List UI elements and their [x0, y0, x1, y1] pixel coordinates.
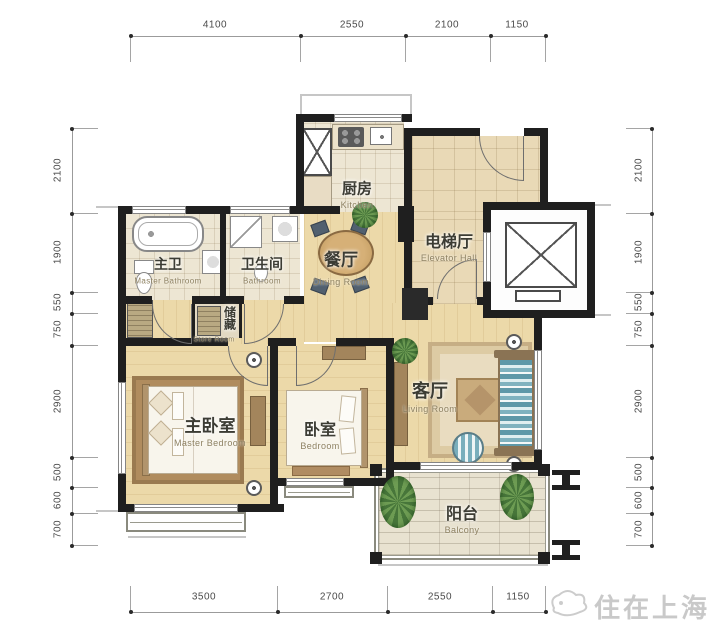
dimension-line-left	[72, 128, 73, 545]
neighbor-wall-stub	[96, 206, 118, 208]
label-balcony-en: Balcony	[445, 525, 480, 535]
pillar	[370, 552, 382, 564]
pillow	[172, 392, 184, 420]
dimension-tick	[492, 586, 493, 612]
label-dining-en: Dining Room	[313, 277, 369, 287]
wall	[268, 338, 296, 346]
door-leaf	[523, 136, 524, 181]
dimension-value: 3500	[192, 592, 216, 603]
label-living-room-zh: 客厅	[412, 377, 448, 403]
wall	[483, 202, 595, 210]
wall	[587, 202, 595, 318]
label-master-bathroom-en: Master Bathroom	[134, 277, 201, 286]
dimension-value: 2700	[320, 592, 344, 603]
wall	[192, 296, 244, 304]
dimension-tick	[626, 213, 652, 214]
wall	[284, 296, 304, 304]
dimension-value: 1150	[505, 20, 529, 31]
dimension-tick	[72, 128, 98, 129]
dimension-tick	[387, 586, 388, 612]
label-master-bathroom-zh: 主卫	[154, 254, 182, 274]
wall	[118, 296, 152, 304]
pillar	[538, 552, 550, 564]
sofa-armrest	[494, 350, 538, 358]
label-master-bedroom-zh: 主卧室	[185, 412, 236, 437]
neighbor-wall-stub	[595, 204, 611, 206]
window	[134, 504, 238, 512]
watermark-text: 住在上海	[594, 588, 710, 625]
dimension-tick	[626, 487, 652, 488]
wall	[540, 128, 548, 210]
label-bedroom-en: Bedroom	[300, 441, 339, 451]
label-store-room-en: Store Room	[193, 337, 234, 344]
dimension-value: 1900	[53, 240, 64, 264]
structural-column	[402, 288, 428, 320]
plant-icon	[380, 476, 416, 528]
kitchen-cabinet	[302, 176, 332, 210]
dimension-value: 500	[53, 463, 64, 481]
dimension-value: 4100	[203, 20, 227, 31]
dimension-tick	[130, 586, 131, 612]
sofa	[498, 358, 534, 448]
dimension-value: 2100	[53, 158, 64, 182]
i-beam-column	[552, 470, 580, 490]
elevator-icon	[505, 222, 577, 288]
wall	[398, 206, 414, 242]
dimension-value: 2550	[428, 592, 452, 603]
dimension-tick	[626, 457, 652, 458]
stove-icon	[338, 127, 364, 147]
kitchen-sink-icon	[370, 127, 392, 145]
wall	[483, 310, 595, 318]
label-bedroom-zh: 卧室	[304, 416, 336, 440]
dimension-tick	[72, 313, 98, 314]
dimension-line-bottom	[130, 612, 545, 613]
dimension-value: 600	[634, 491, 645, 509]
watermark-logo-icon	[546, 586, 590, 627]
door-leaf	[476, 259, 477, 299]
plant-icon	[500, 474, 534, 520]
window	[118, 382, 126, 474]
wall	[192, 304, 195, 338]
shower	[230, 216, 262, 248]
dimension-value: 700	[634, 520, 645, 538]
i-beam-column	[552, 540, 580, 560]
dimension-tick	[72, 513, 98, 514]
sill-line	[378, 564, 548, 566]
wall	[483, 282, 491, 318]
dimension-tick	[405, 36, 406, 62]
balcony-sliding-door	[420, 462, 512, 470]
label-bathroom-en: Bathroom	[243, 277, 281, 286]
dimension-line-top	[130, 36, 545, 37]
bathtub	[132, 216, 204, 252]
coffee-table	[452, 432, 484, 464]
bay-window	[284, 486, 354, 498]
nightstand-lamp	[246, 480, 262, 496]
window	[334, 114, 402, 122]
floor-plan-canvas: 厨房 Kitchen 电梯厅 Elevator Hall 餐厅 Dining R…	[0, 0, 720, 631]
window	[534, 350, 542, 450]
sofa-armrest	[494, 448, 538, 456]
neighbor-wall-stub	[595, 314, 611, 316]
hall-cabinet	[127, 300, 153, 338]
bay-window	[126, 512, 246, 532]
rug-medallion	[456, 378, 504, 422]
wall	[524, 128, 548, 136]
rug-medallion-inner	[464, 384, 495, 415]
bathtub-inner	[138, 222, 198, 246]
neighbor-wall-stub	[300, 94, 302, 114]
elevator-sill	[515, 290, 561, 302]
plant-icon	[392, 338, 418, 364]
dimension-tick	[626, 345, 652, 346]
label-store-room-zh: 储藏	[222, 306, 239, 330]
neighbor-wall-stub	[410, 94, 412, 114]
dimension-value: 2900	[634, 389, 645, 413]
dimension-tick	[130, 36, 131, 62]
dimension-value: 750	[634, 320, 645, 338]
dimension-tick	[72, 457, 98, 458]
pillow	[339, 395, 357, 422]
label-kitchen-zh: 厨房	[342, 178, 372, 199]
label-elevator-hall-zh: 电梯厅	[425, 228, 473, 252]
neighbor-wall-stub	[300, 94, 412, 96]
dimension-tick	[300, 36, 301, 62]
dimension-tick	[545, 36, 546, 62]
pillow	[339, 427, 356, 454]
window	[286, 478, 344, 486]
storage-shelves	[197, 306, 221, 336]
window	[132, 206, 186, 214]
wall	[296, 206, 340, 214]
wall	[404, 128, 480, 136]
dimension-tick	[626, 545, 652, 546]
dimension-value: 1900	[634, 240, 645, 264]
dimension-value: 2100	[435, 20, 459, 31]
door-leaf	[191, 304, 192, 344]
dimension-value: 750	[53, 320, 64, 338]
elevator-door	[483, 232, 491, 282]
pillar	[370, 464, 382, 476]
dimension-line-right	[652, 128, 653, 545]
dimension-tick	[626, 128, 652, 129]
wall	[483, 202, 491, 232]
dimension-tick	[626, 513, 652, 514]
label-balcony-zh: 阳台	[446, 500, 478, 524]
dimension-value: 2100	[634, 158, 645, 182]
label-living-room-en: Living Room	[403, 404, 457, 414]
side-table-lamp	[506, 334, 522, 350]
sill-line	[128, 536, 246, 538]
label-kitchen-en: Kitchen	[341, 200, 374, 210]
dimension-tick	[72, 345, 98, 346]
dimension-value: 1150	[506, 592, 530, 603]
dimension-value: 2550	[340, 20, 364, 31]
dimension-value: 2900	[53, 389, 64, 413]
dimension-tick	[72, 487, 98, 488]
door-leaf	[244, 304, 245, 344]
dimension-tick	[72, 292, 98, 293]
dimension-value: 500	[634, 463, 645, 481]
label-master-bedroom-en: Master Bedroom	[174, 438, 246, 448]
dimension-value: 550	[53, 293, 64, 311]
dimension-value: 550	[634, 293, 645, 311]
refrigerator-icon	[302, 128, 332, 176]
wall	[220, 212, 226, 300]
wall	[386, 462, 420, 470]
neighbor-wall-stub	[96, 510, 118, 512]
wall	[239, 304, 242, 338]
watermark: 住在上海	[546, 584, 716, 624]
dimension-tick	[277, 586, 278, 612]
pillar	[538, 464, 550, 476]
window	[230, 206, 290, 214]
dimension-tick	[626, 313, 652, 314]
dimension-value: 700	[53, 520, 64, 538]
door-leaf	[296, 346, 297, 386]
dimension-tick	[72, 213, 98, 214]
master-bedroom-dresser	[250, 396, 266, 446]
label-bathroom-zh: 卫生间	[241, 254, 283, 274]
bedroom-rug	[292, 466, 350, 476]
label-dining-zh: 餐厅	[324, 246, 358, 271]
wall	[296, 114, 304, 214]
dimension-tick	[490, 36, 491, 62]
washbasin	[272, 216, 298, 242]
dimension-value: 600	[53, 491, 64, 509]
dimension-tick	[72, 545, 98, 546]
label-elevator-hall-en: Elevator Hall	[421, 253, 477, 263]
door-leaf	[267, 346, 268, 386]
